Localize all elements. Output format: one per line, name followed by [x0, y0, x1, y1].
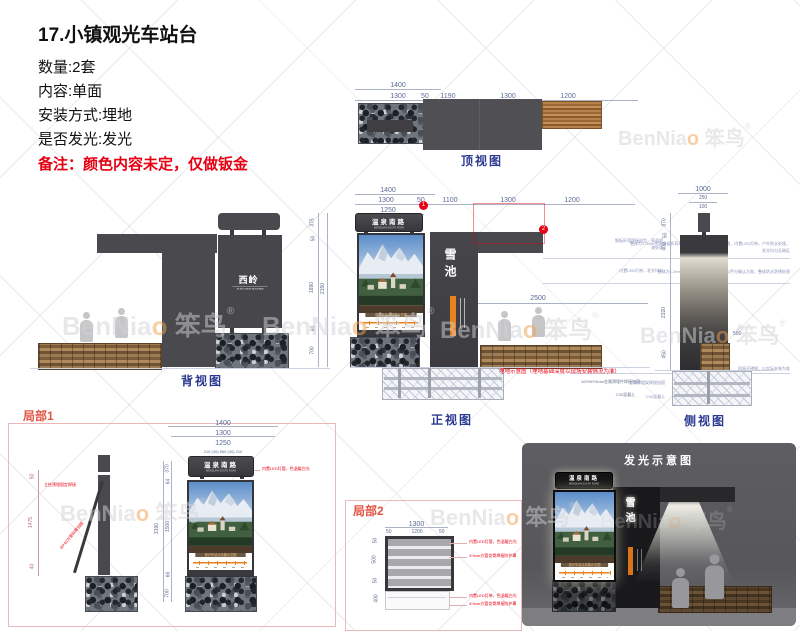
- dim-label: 375: [311, 218, 316, 226]
- dim-label: 1100: [430, 197, 470, 204]
- dim-label: 2320: [662, 307, 667, 318]
- section-line: [388, 597, 446, 598]
- view-label-side: 侧视图: [675, 412, 735, 429]
- station-name-en: WENQUAN SOUTH ROAD: [201, 469, 241, 472]
- dim-label: 370: [166, 464, 171, 472]
- station-name: 温泉南路: [556, 474, 612, 482]
- lightbox: 观光车站点线路示意图: [187, 480, 254, 577]
- detail-note: 4*4cm方管龙骨焊接防护罩: [469, 554, 521, 558]
- dim-line: [168, 426, 278, 427]
- spec-note: 备注：颜色内容未定，仅做钣金: [38, 153, 248, 174]
- design-sheet: 17.小镇观光车站台 数量:2套 内容:单面 安装方式:埋地 是否发光:发光 备…: [0, 0, 800, 631]
- person-silhouette: [705, 554, 724, 599]
- route-stations: [559, 576, 610, 579]
- glow-diagram: 发光示意图 雪池 温泉南路 WENQUAN SOUTH ROAD 观光车站点线路…: [520, 440, 800, 631]
- mountain-photo: [555, 492, 614, 563]
- louver-box: [385, 536, 454, 591]
- dim-line: [385, 527, 448, 528]
- route-title: 观光车站点线路示意图: [195, 553, 245, 557]
- burial-note: 埋地示意图（埋地基础深度以现场安装情况为准）: [450, 370, 620, 376]
- leader-line: [449, 557, 467, 558]
- route-bar: 观光车站点线路示意图: [189, 553, 252, 570]
- detail-note: 4*4cm方管龙骨焊接防护罩: [469, 602, 521, 606]
- dim-line-vert: [327, 213, 328, 367]
- dim-label: 400: [663, 242, 668, 250]
- fabrication-note: 金属预埋架焊接加固: [615, 380, 665, 387]
- column: [162, 234, 215, 367]
- ground-line: [30, 368, 330, 369]
- dim-label: 50: [311, 236, 316, 242]
- dim-label: 3190: [155, 523, 160, 534]
- station-name: 温泉南路: [356, 216, 422, 226]
- station-sign-head: 温泉南路 WENQUAN SOUTH ROAD: [188, 456, 254, 477]
- wood-bench-plan: [542, 101, 602, 129]
- spec-install: 安装方式:埋地: [38, 104, 132, 125]
- gabion-base: [85, 576, 138, 612]
- gabion-base: [552, 580, 616, 612]
- column: 雪池: [430, 232, 478, 368]
- station-name-en: WENQUAN SOUTH ROAD: [567, 482, 602, 485]
- fabrication-note: C30混凝土: [620, 394, 665, 401]
- callout-region: [473, 203, 545, 244]
- foundation-bar: [384, 377, 502, 380]
- sign-cap-side: [698, 213, 710, 232]
- column-orange-bar: [450, 296, 456, 336]
- dim-label-total: 2150: [321, 283, 326, 294]
- gabion-base-top: [358, 103, 424, 144]
- lightbox: 观光车站点线路示意图: [553, 490, 616, 582]
- view-label-back: 背视图: [170, 372, 234, 389]
- top-view: 1400 1300 50 1190 1300 1200 1250 顶视图: [340, 82, 645, 172]
- dim-label: 64: [166, 479, 171, 485]
- mountain-photo: [189, 482, 252, 553]
- dim-label: 250: [688, 196, 718, 201]
- dim-line: [355, 89, 441, 90]
- dim-label: 370: [663, 218, 668, 226]
- dim-label: 50: [373, 578, 378, 584]
- foundation-bar: [384, 387, 502, 390]
- column-name-text: 雪池: [442, 248, 459, 282]
- route-bar: 观光车站点线路示意图: [359, 313, 423, 330]
- view-label-top: 顶视图: [450, 152, 514, 169]
- detail-label: 局部1: [23, 407, 54, 424]
- dim-label: 1400: [368, 187, 408, 194]
- view-label-front: 正视图: [420, 411, 484, 428]
- station-name: 温泉南路: [189, 459, 253, 469]
- person-silhouette: [532, 307, 545, 337]
- callout-marker-2: 2: [539, 225, 548, 234]
- dim-label: 50: [30, 474, 35, 480]
- route-line: [557, 569, 612, 576]
- sign-cap: [218, 213, 280, 230]
- stone-wall: [480, 345, 602, 369]
- page-title: 17.小镇观光车站台: [38, 20, 197, 47]
- dim-label: 2500: [518, 295, 558, 302]
- person-silhouette: [115, 308, 128, 338]
- detail-note: 内置LED灯管，色温暖白光: [469, 540, 521, 544]
- dim-line: [171, 436, 275, 437]
- station-name-en: WENQUAN SOUTH ROAD: [369, 226, 410, 229]
- route-line: [361, 319, 421, 326]
- lightbox-footer: [189, 570, 252, 575]
- detail-note: 内置LED灯带，色温暖白光: [469, 594, 521, 598]
- dim-label-segments: 210 (40) 650 (40) 210: [170, 450, 276, 454]
- lightbox: 观光车站点线路示意图: [357, 233, 425, 337]
- dim-label: 50: [663, 233, 668, 239]
- person-silhouette: [672, 568, 689, 608]
- stone-wall-side: [700, 343, 730, 371]
- dim-label: 100: [690, 205, 716, 210]
- dim-line-vert: [670, 213, 671, 370]
- stone-wall: [38, 343, 162, 370]
- dim-label: 66: [166, 572, 171, 578]
- spec-content: 内容:单面: [38, 80, 102, 101]
- leader-line: [449, 543, 467, 544]
- dim-label: 50: [386, 530, 392, 535]
- roof-plan: [423, 99, 542, 150]
- dim-label: 400: [375, 594, 380, 602]
- dim-line: [355, 194, 435, 195]
- dim-line: [678, 193, 728, 194]
- panel-section: [385, 591, 450, 610]
- route-stations: [193, 566, 248, 569]
- fabrication-note: 内置LED灯带，发光均匀: [615, 268, 663, 275]
- column-small-text: [637, 549, 643, 571]
- route-line: [191, 559, 250, 566]
- route-title: 观光车站点线路示意图: [365, 313, 416, 317]
- dim-label: 1200: [548, 93, 588, 100]
- dim-label: 1475: [29, 517, 34, 528]
- dim-line-vert: [38, 470, 39, 576]
- detail-1: 局部1 50 1475 40 立柱预埋固定焊接 40*40方管斜撑加固 1400…: [8, 406, 338, 628]
- person-silhouette: [498, 311, 511, 341]
- fabrication-note: 钢板折弯焊接成型，表面喷漆处理: [615, 238, 663, 252]
- leader-line: [449, 597, 467, 598]
- foundation-bar: [674, 394, 750, 397]
- foundation-post: [398, 368, 401, 398]
- dim-label: 500: [373, 555, 378, 563]
- column-small-text: [460, 298, 467, 328]
- glow-panel: 发光示意图 雪池 温泉南路 WENQUAN SOUTH ROAD 观光车站点线路…: [522, 443, 796, 626]
- detail-2: 局部2 1300 50 1200 50 50 500 50 400 内置LED灯…: [345, 496, 525, 631]
- dim-label: 700: [166, 589, 171, 597]
- post-cap: [98, 455, 110, 472]
- dim-label: 1000: [683, 186, 723, 193]
- route-stations: [363, 326, 419, 329]
- spec-quantity: 数量:2套: [38, 56, 96, 77]
- gabion-base: [215, 333, 289, 369]
- dim-label: 1200: [403, 530, 431, 535]
- dim-label: 1400: [373, 82, 423, 89]
- foundation-bar: [674, 382, 750, 385]
- glow-title: 发光示意图: [522, 452, 796, 468]
- dim-line-vert: [163, 461, 164, 602]
- dim-label: 1200: [552, 197, 592, 204]
- dim-label: 1500: [166, 521, 171, 532]
- dim-line-vert: [318, 213, 319, 367]
- dim-line: [689, 202, 717, 203]
- gabion-base: [350, 337, 420, 368]
- dim-label: 1890: [310, 282, 315, 293]
- dim-label: 50: [439, 530, 445, 535]
- foundation-post: [707, 371, 710, 404]
- dim-label: 700: [311, 346, 316, 354]
- dim-label: 500: [733, 332, 741, 337]
- person-silhouette: [80, 312, 93, 342]
- foundation: [672, 371, 752, 406]
- column-name-text: 雪池: [621, 497, 636, 527]
- dim-label: 1300: [366, 197, 406, 204]
- back-view: 西岭· XILING SNOW MOUNTAIN 375 50 1890 60 …: [30, 200, 335, 395]
- callout-marker-1: 1: [419, 201, 428, 210]
- route-title: 观光车站点线路示意图: [561, 563, 608, 567]
- dim-label: 40: [30, 564, 35, 570]
- leader-line: [449, 605, 467, 606]
- dim-label: 60: [311, 326, 316, 332]
- xiling-logo: 西岭· XILING SNOW MOUNTAIN: [218, 273, 282, 293]
- side-view: 1000 250 100 370 50 400 2320 450 500 钢板折…: [615, 180, 800, 428]
- panel-seam: [479, 99, 480, 150]
- detail-note: 内置LED灯管，色温暖白光: [262, 467, 332, 471]
- spec-glow: 是否发光:发光: [38, 128, 132, 149]
- route-bar: 观光车站点线路示意图: [555, 563, 614, 580]
- mountain-photo: [359, 235, 423, 313]
- column-orange-bar: [628, 547, 633, 575]
- gabion-base: [185, 576, 257, 612]
- detail-label: 局部2: [353, 502, 384, 519]
- dim-label: 50: [373, 538, 378, 544]
- post-slot: [367, 120, 413, 132]
- foundation-post: [428, 368, 431, 398]
- back-panel: 西岭· XILING SNOW MOUNTAIN: [218, 235, 282, 328]
- lightbox-footer: [359, 330, 423, 335]
- dim-label: 1300: [376, 93, 420, 100]
- dim-label: 1250: [188, 440, 258, 447]
- station-sign-head: 温泉南路 WENQUAN SOUTH ROAD: [355, 213, 423, 232]
- station-sign-head: 温泉南路 WENQUAN SOUTH ROAD: [555, 472, 613, 489]
- detail-note: 立柱预埋固定焊接: [44, 483, 102, 487]
- dim-label: 450: [663, 350, 668, 358]
